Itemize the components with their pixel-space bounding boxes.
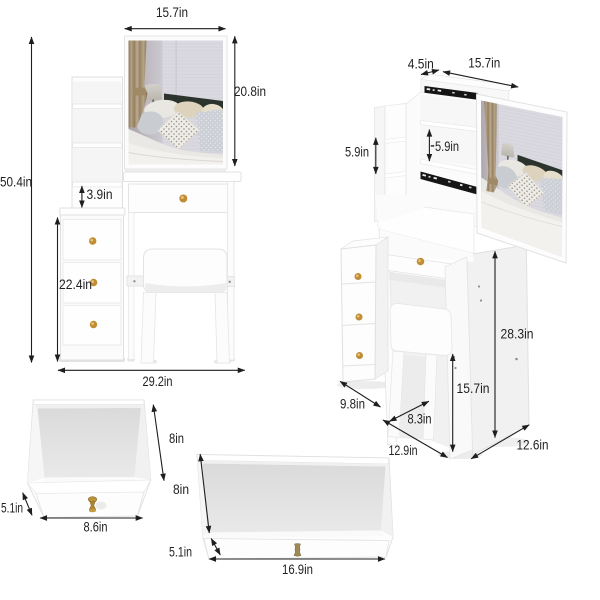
svg-text:5.1in: 5.1in [169, 545, 192, 560]
svg-text:5.1in: 5.1in [1, 501, 23, 516]
svg-text:50.4in: 50.4in [0, 175, 32, 190]
svg-text:8in: 8in [169, 431, 184, 446]
svg-text:9.8in: 9.8in [340, 397, 365, 412]
svg-text:4.5in: 4.5in [408, 57, 434, 72]
svg-text:15.7in: 15.7in [468, 56, 500, 71]
svg-text:15.7in: 15.7in [156, 5, 188, 20]
svg-text:8.3in: 8.3in [408, 412, 432, 427]
svg-text:12.9in: 12.9in [389, 443, 418, 458]
svg-text:5.9in: 5.9in [435, 139, 459, 154]
svg-text:29.2in: 29.2in [143, 374, 173, 389]
svg-text:5.9in: 5.9in [345, 145, 369, 160]
svg-text:15.7in: 15.7in [457, 381, 490, 396]
svg-text:16.9in: 16.9in [282, 562, 313, 577]
svg-text:20.8in: 20.8in [234, 84, 266, 99]
svg-text:12.6in: 12.6in [517, 438, 549, 453]
svg-text:28.3in: 28.3in [501, 327, 534, 342]
svg-text:3.9in: 3.9in [87, 187, 113, 202]
svg-text:8.6in: 8.6in [84, 520, 108, 535]
svg-text:8in: 8in [173, 482, 189, 497]
svg-text:22.4in: 22.4in [59, 277, 92, 292]
